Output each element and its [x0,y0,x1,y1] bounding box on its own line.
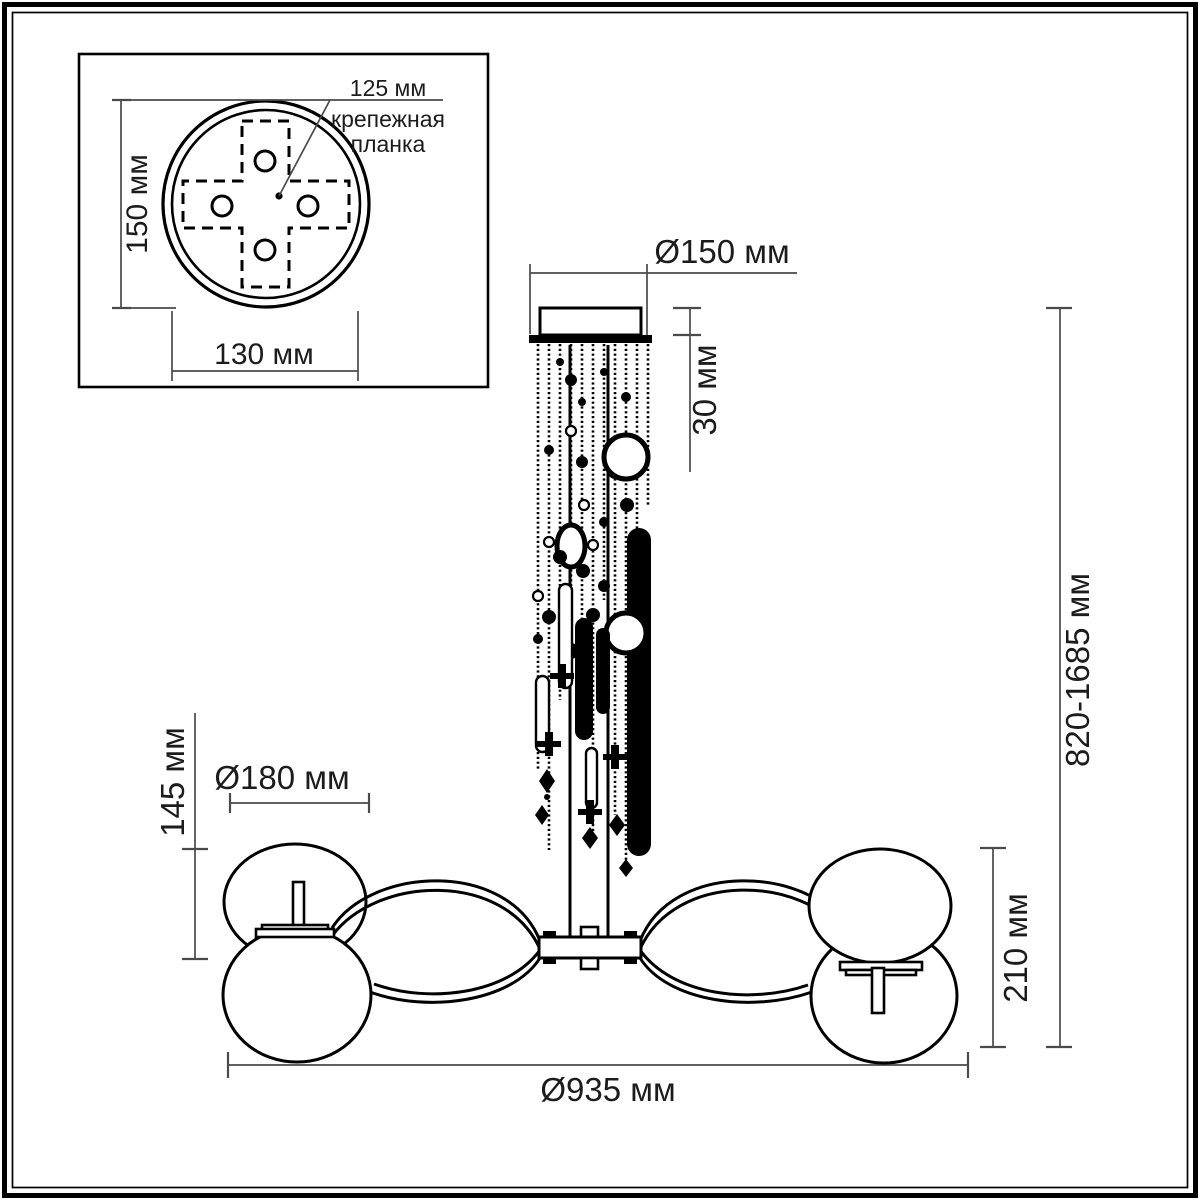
crystal-capsule-clear [586,748,597,808]
technical-drawing-page: 125 мм крепежная планка 150 мм 130 мм Ø1… [0,0,1200,1200]
crystal-drop [609,814,625,836]
crystal-capsule [596,628,610,714]
arm-lower-left-outer [370,958,540,1002]
crystal-drop [535,805,549,825]
crystal-bead [576,564,590,578]
crystal-bead [578,398,586,406]
crystal-bead-clear [579,500,589,510]
hole-pitch-label: 125 мм [350,75,426,101]
crystal-bead [598,580,610,592]
lamp-shade-front-left [223,928,371,1062]
crystal-capsule [575,618,593,740]
crystal-bead [600,368,608,376]
crystal-bead [533,634,543,644]
crystal-bead-clear [544,537,554,547]
crystal-bead-clear [533,591,543,601]
right-shade-group [640,849,957,1063]
suspension-height-label: 820-1685 мм [1059,573,1096,767]
crystal-bead [620,498,634,512]
crystal-rod-large [627,528,651,856]
crystal-bead-clear [588,540,598,550]
center-hub [539,927,641,969]
plate-width-label: 130 мм [214,338,314,371]
plate-height-label: 150 мм [121,154,154,254]
plate-name-line1: крепежная [331,106,445,132]
arm-lower-left-inner [374,950,540,994]
crystal-bead [576,456,588,468]
shade-height-label: 145 мм [154,727,191,837]
body-height-label: 210 мм [997,893,1034,1003]
mounting-plate-inset: 125 мм крепежная планка 150 мм 130 мм [79,54,488,387]
chandelier-dimension-drawing: 125 мм крепежная планка 150 мм 130 мм Ø1… [0,0,1200,1200]
crystal-bead [544,794,550,800]
canopy-flange [529,335,652,343]
crystal-bead [553,550,567,564]
canopy-body [540,308,641,335]
canopy-diameter-label: Ø150 мм [654,233,789,270]
crystal-bead [556,358,564,366]
crystal-drop [619,859,633,877]
left-shade-group [223,844,540,1062]
shade-stem-peg-left [293,882,304,930]
crystal-bead-clear [566,426,576,436]
hub-body [539,937,641,958]
shade-holder-plate-left [256,929,334,937]
crystal-bead [565,374,577,386]
hub-tab-bottom [581,958,598,969]
crystal-ring [606,613,646,653]
crystal-bead [621,392,631,402]
ceiling-canopy [529,308,652,343]
overall-diameter-label: Ø935 мм [540,1071,675,1108]
crystal-strands [533,344,651,938]
plate-name-line2: планка [351,131,426,157]
crystal-bead [599,517,609,527]
lamp-shade-front-right [809,849,951,963]
crystal-bead [542,610,556,624]
shade-diameter-label: Ø180 мм [214,759,349,796]
crystal-cross [578,800,602,824]
canopy-height-label: 30 мм [686,344,723,435]
arm-lower-right-inner [640,950,808,995]
arm-lower-right-outer [640,958,812,1002]
shade-stem-peg-right [872,968,884,1013]
crystal-ring [604,435,648,479]
crystal-drop [539,769,555,793]
crystal-drop [582,827,598,849]
crystal-bead [544,445,554,455]
